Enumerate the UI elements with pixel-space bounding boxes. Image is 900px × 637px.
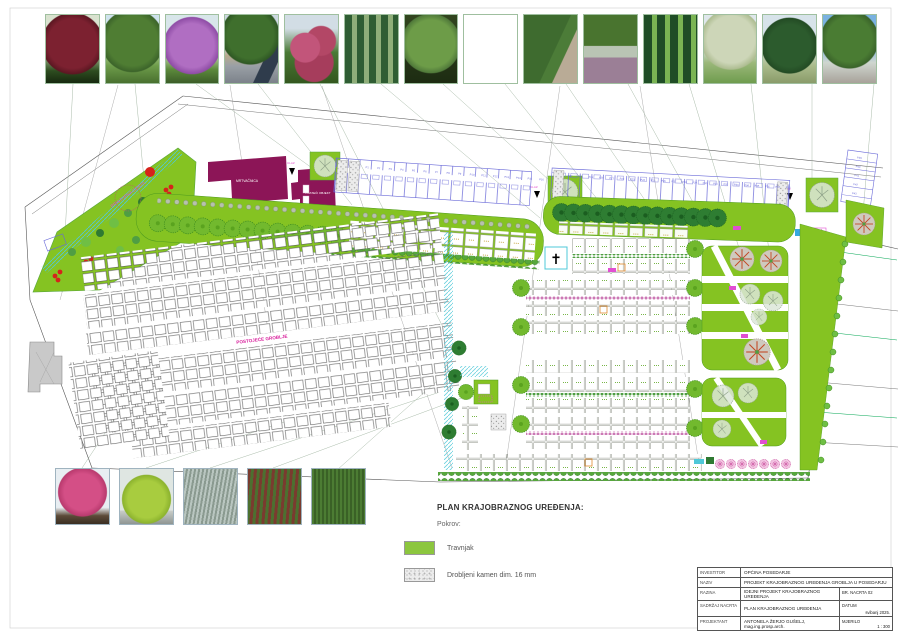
photo-strip-top [45, 14, 877, 84]
svg-text:P19: P19 [588, 175, 593, 179]
gravel-swatch [404, 568, 435, 582]
photo-oleander-shrub [284, 14, 339, 84]
title-block-row: RAZINA IDEJNI PROJEKT KRAJOBRAZNOG UREĐE… [698, 587, 892, 600]
svg-text:P17: P17 [568, 174, 573, 178]
cross-box: ✝ [545, 247, 567, 269]
photo-conical-conifers [762, 14, 817, 84]
title-block-row: SADRŽAJ NACRTA PLAN KRAJOBRAZNOG UREĐENJ… [698, 600, 892, 616]
photo-white-flower-shrub [404, 14, 459, 84]
photo-photinia-hedge [247, 468, 302, 525]
photo-purple-flower-tree [165, 14, 220, 84]
svg-text:P25: P25 [651, 178, 656, 182]
svg-text:P33: P33 [734, 183, 739, 187]
legend-item-grass: Travnjak [404, 541, 634, 555]
svg-text:P11: P11 [481, 173, 486, 177]
svg-text:P15: P15 [527, 176, 532, 180]
photo-hedge-path [523, 14, 578, 84]
photo-red-leaf-tree [45, 14, 100, 84]
svg-text:P37: P37 [775, 185, 780, 189]
svg-text:P35: P35 [755, 184, 760, 188]
photo-silver-groundcover [183, 468, 238, 525]
svg-text:P29: P29 [692, 180, 697, 184]
park-lower-block [702, 378, 786, 446]
svg-text:P16: P16 [539, 177, 544, 181]
photo-green-hedge [311, 468, 366, 525]
svg-text:P14: P14 [516, 176, 521, 180]
svg-text:ULAZ: ULAZ [287, 161, 295, 165]
svg-text:ULAZ: ULAZ [530, 185, 538, 189]
legend: PLAN KRAJOBRAZNOG UREĐENJA: Pokrov: Trav… [404, 503, 634, 582]
title-block: INVESTITOR OPĆINA POSEDARJE NAZIV PROJEK… [697, 567, 893, 631]
svg-text:P38: P38 [786, 185, 791, 189]
bench [733, 226, 741, 230]
cross-symbol: ✝ [550, 251, 562, 267]
photo-hedge-lavender [583, 14, 638, 84]
svg-text:P28: P28 [682, 180, 687, 184]
photo-round-street-tree [822, 14, 877, 84]
plan-sheet: PRISTUPNA CESTA MRTVAČNICA PRATEĆI OBJEK… [0, 0, 900, 637]
svg-text:P23: P23 [630, 177, 635, 181]
photo-pink-azalea [55, 468, 110, 525]
title-block-row: NAZIV PROJEKT KRAJOBRAZNOG UREĐENJA GROB… [698, 577, 892, 587]
svg-text:P20: P20 [599, 175, 604, 179]
lower-left-grid [68, 350, 169, 450]
svg-text:P27: P27 [671, 179, 676, 183]
svg-text:P39: P39 [857, 155, 863, 160]
title-block-row: INVESTITOR OPĆINA POSEDARJE [698, 568, 892, 577]
svg-text:P22: P22 [620, 177, 625, 181]
photo-columnar-nursery [344, 14, 399, 84]
photo-street-tree [224, 14, 279, 84]
central-path [442, 232, 506, 470]
svg-text:P41: P41 [854, 173, 860, 178]
svg-text:P24: P24 [640, 178, 645, 182]
svg-text:P21: P21 [609, 176, 614, 180]
pink-shrub-row [694, 457, 791, 469]
svg-text:P36: P36 [765, 184, 770, 188]
photo-pleached-trees [463, 14, 518, 84]
building1-label: MRTVAČNICA [236, 178, 259, 183]
legend-item-gravel: Drobljeni kamen dim. 16 mm [404, 568, 634, 582]
svg-text:P30: P30 [703, 181, 708, 185]
parking-lot-c: P39P40P41P42P43P44 [841, 150, 878, 207]
far-right-wedge [846, 200, 884, 248]
photo-green-lawn-tree [105, 14, 160, 84]
svg-text:P34: P34 [744, 183, 749, 187]
svg-text:P18: P18 [578, 174, 583, 178]
svg-text:P32: P32 [723, 182, 728, 186]
park-upper-block [702, 246, 788, 370]
svg-text:P43: P43 [852, 191, 858, 196]
title-block-row: PROJEKTANT ANTONELA ŽERJO GUŠELJ, mag.in… [698, 616, 892, 630]
svg-text:P40: P40 [856, 164, 862, 169]
photo-lime-ball-shrub [119, 468, 174, 525]
photo-blossom-tree [703, 14, 758, 84]
svg-text:P13: P13 [504, 175, 509, 179]
legend-title: PLAN KRAJOBRAZNOG UREĐENJA: [437, 503, 634, 512]
grass-swatch [404, 541, 435, 555]
parking-lot-a: P1P2P3P4P5P6P7P8P9P10P11P12P13P14P15P16 [334, 158, 545, 207]
svg-text:P31: P31 [713, 181, 718, 185]
existing-building [28, 342, 62, 392]
svg-text:P12: P12 [493, 174, 498, 178]
svg-text:P26: P26 [661, 179, 666, 183]
grave-rows-lower [513, 360, 704, 449]
svg-text:P10: P10 [470, 172, 475, 176]
svg-text:P42: P42 [853, 182, 859, 187]
photo-strip-bottom [55, 468, 385, 525]
photo-cypress-group [643, 14, 698, 84]
green-slope [800, 224, 848, 470]
legend-subtitle: Pokrov: [437, 521, 634, 528]
